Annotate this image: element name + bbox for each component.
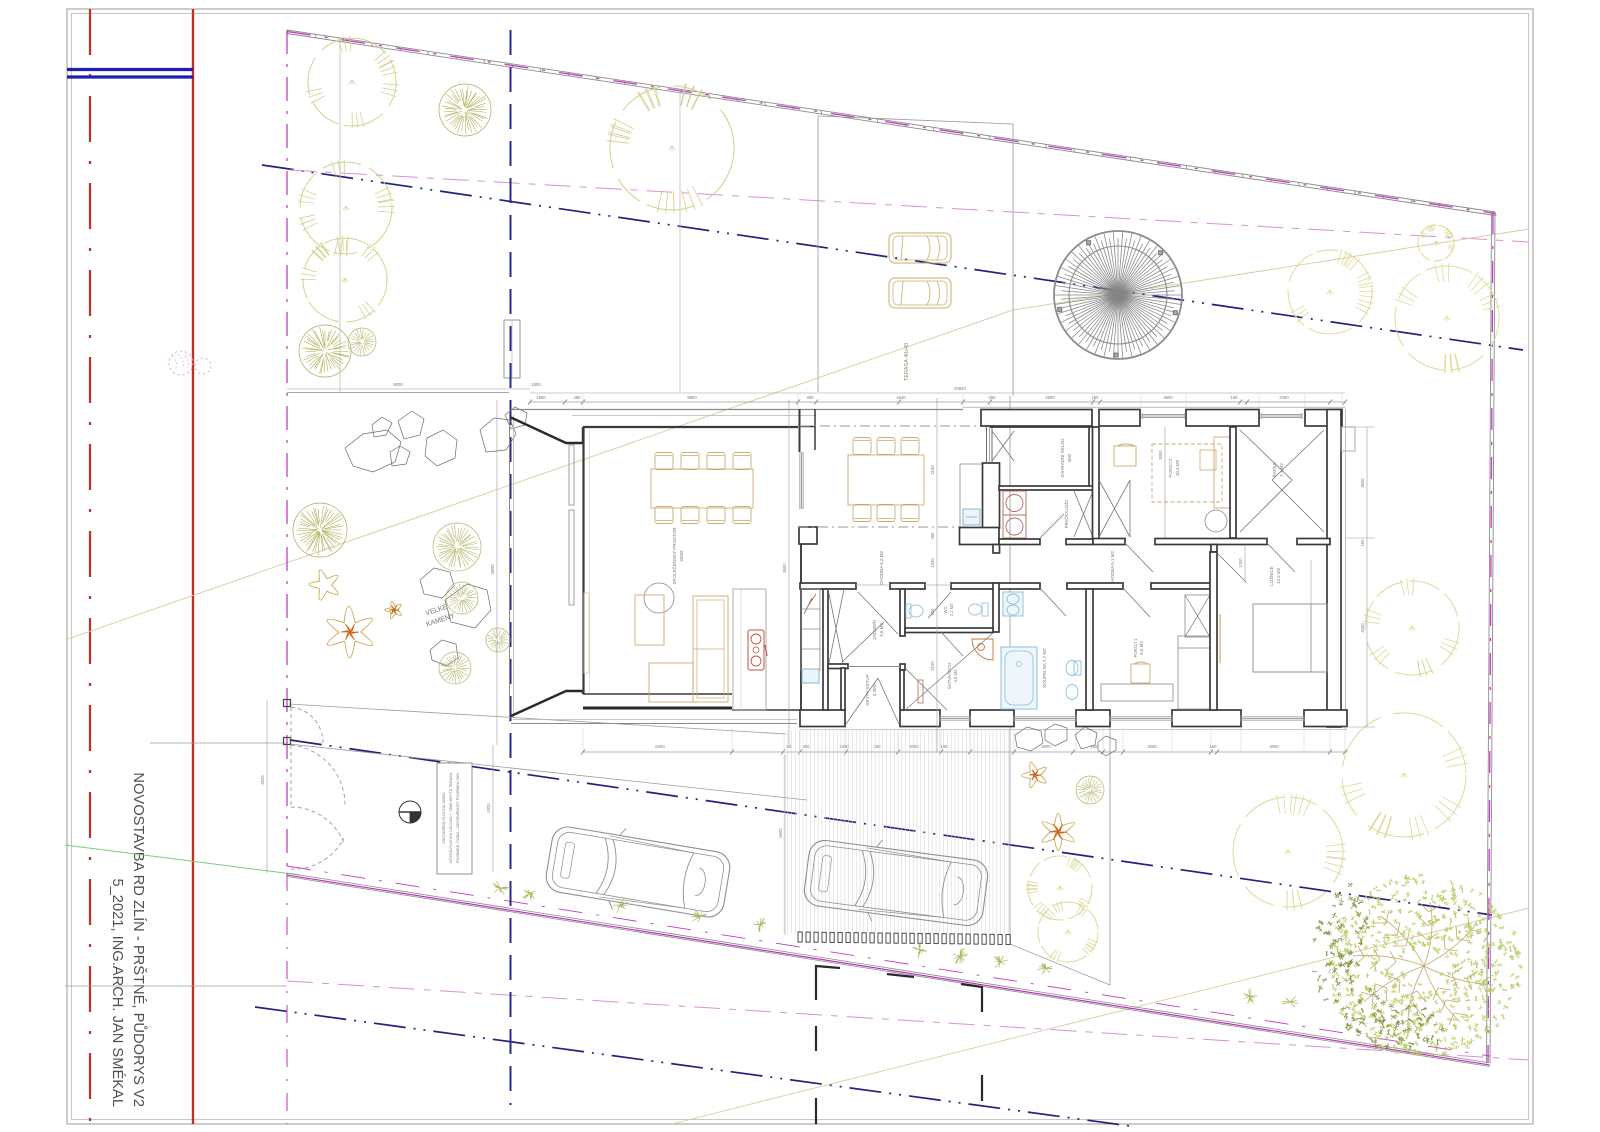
svg-text:3000: 3000: [1158, 450, 1163, 460]
svg-text:CHODBA 6,2 M2: CHODBA 6,2 M2: [879, 550, 884, 585]
svg-text:6400: 6400: [655, 744, 665, 749]
svg-text:LOŽNICE: LOŽNICE: [1267, 566, 1274, 586]
svg-text:ZÁDVEŘÍ: ZÁDVEŘÍ: [870, 620, 877, 640]
svg-text:150: 150: [1091, 744, 1099, 749]
svg-text:450: 450: [807, 395, 815, 400]
svg-text:10,3 M2: 10,3 M2: [1175, 459, 1180, 476]
svg-text:3150: 3150: [930, 465, 935, 475]
svg-text:150: 150: [1092, 395, 1100, 400]
svg-text:NOVOSTAVBA RD ZLÍN - PRŠTNÉ, P: NOVOSTAVBA RD ZLÍN - PRŠTNÉ, PŮDORYS V2: [130, 772, 148, 1107]
svg-text:3000: 3000: [1147, 744, 1157, 749]
svg-text:45M2: 45M2: [679, 550, 684, 562]
svg-text:KOUPELNA 7,7 M2: KOUPELNA 7,7 M2: [1042, 648, 1047, 688]
svg-text:50: 50: [787, 744, 792, 749]
svg-text:150: 150: [941, 744, 949, 749]
svg-text:9,5 M2: 9,5 M2: [1139, 641, 1144, 655]
svg-text:450: 450: [989, 395, 997, 400]
svg-text:150: 150: [1210, 744, 1218, 749]
svg-text:2,1 M2: 2,1 M2: [949, 603, 954, 616]
svg-text:ŠATNA: ŠATNA: [1271, 463, 1277, 478]
svg-text:TERASA 40x40: TERASA 40x40: [904, 343, 910, 381]
svg-text:4M2: 4M2: [1067, 453, 1072, 462]
svg-text:1200: 1200: [930, 558, 935, 568]
svg-text:4,6 M2: 4,6 M2: [953, 669, 958, 682]
svg-text:WC: WC: [943, 607, 948, 614]
svg-text:3000: 3000: [1269, 744, 1279, 749]
svg-text:ŠATNA/TECH: ŠATNA/TECH: [947, 663, 952, 689]
svg-text:8500: 8500: [782, 563, 787, 573]
svg-text:9000: 9000: [393, 382, 403, 387]
svg-text:ZAHRADNÍ SKLAD: ZAHRADNÍ SKLAD: [1059, 438, 1065, 478]
svg-text:5500: 5500: [778, 828, 783, 838]
svg-text:3600: 3600: [1163, 395, 1173, 400]
svg-text:3000: 3000: [1360, 478, 1365, 488]
svg-text:4625: 4625: [260, 775, 265, 785]
svg-text:2400: 2400: [1279, 395, 1289, 400]
svg-text:7,1 M2: 7,1 M2: [1279, 463, 1284, 477]
svg-text:450: 450: [574, 395, 582, 400]
svg-text:POZEMEK 732M2 - ZASTAVĚNOST PO: POZEMEK 732M2 - ZASTAVĚNOST POZEMKU 28%: [455, 772, 460, 863]
svg-text:CHODBA 5,1 M2: CHODBA 5,1 M2: [1110, 550, 1115, 585]
svg-text:2500: 2500: [1041, 744, 1051, 749]
svg-text:2050: 2050: [909, 744, 919, 749]
svg-text:4440: 4440: [896, 395, 906, 400]
svg-text:1500: 1500: [536, 395, 546, 400]
svg-text:4450: 4450: [1360, 623, 1365, 633]
svg-text:5800: 5800: [687, 395, 697, 400]
svg-text:450: 450: [930, 532, 935, 540]
svg-text:POKOJ 1: POKOJ 1: [1133, 638, 1138, 658]
svg-text:5_2021, ING.ARCH. JAN SMÉKAL: 5_2021, ING.ARCH. JAN SMÉKAL: [109, 878, 126, 1107]
svg-text:450: 450: [874, 744, 882, 749]
svg-text:UŽITNÁ PLOCHA 125,5 M2 + 13M2: UŽITNÁ PLOCHA 125,5 M2 + 13M2 KRYTÁ TERA…: [448, 772, 453, 863]
svg-text:8500: 8500: [490, 564, 495, 574]
svg-text:3,6 M2: 3,6 M2: [879, 623, 884, 637]
svg-text:SPOLEČENSKÝ PROSTOR: SPOLEČENSKÝ PROSTOR: [671, 527, 677, 585]
svg-text:1500: 1500: [531, 382, 541, 387]
svg-text:13,3 M2: 13,3 M2: [1276, 567, 1281, 584]
svg-text:POKOJ 2: POKOJ 2: [1168, 458, 1173, 478]
svg-text:450: 450: [803, 744, 811, 749]
svg-text:2100: 2100: [930, 661, 935, 671]
svg-text:4320: 4320: [486, 803, 491, 813]
svg-text:ZASTAVĚNÁ PLOCHA 199M2: ZASTAVĚNÁ PLOCHA 199M2: [441, 792, 446, 843]
svg-text:150: 150: [1360, 539, 1365, 547]
svg-text:PRAČKA LDŽ2: PRAČKA LDŽ2: [1064, 499, 1069, 528]
svg-text:2500: 2500: [1045, 395, 1055, 400]
svg-text:20840: 20840: [954, 386, 966, 391]
svg-text:1200: 1200: [1238, 558, 1243, 568]
svg-text:900: 900: [930, 608, 935, 616]
svg-text:150: 150: [1231, 395, 1239, 400]
svg-text:KRYTÝ VSTUP: KRYTÝ VSTUP: [864, 674, 870, 705]
